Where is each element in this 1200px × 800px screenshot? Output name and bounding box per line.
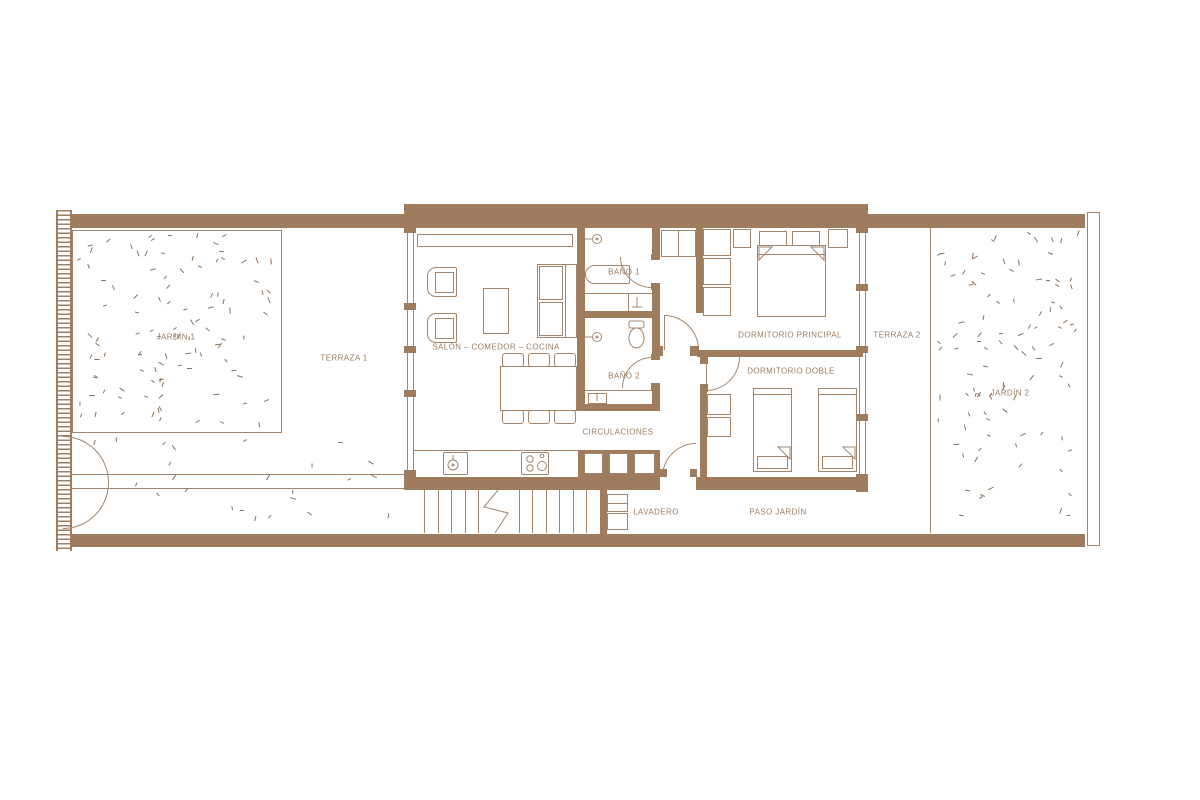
grass-icon bbox=[293, 490, 294, 494]
grass-icon bbox=[221, 338, 226, 341]
grass-icon bbox=[939, 346, 943, 351]
grass-icon bbox=[190, 320, 194, 326]
kitchen-counter-edge bbox=[414, 450, 578, 451]
grass-icon bbox=[1059, 469, 1063, 472]
grass-icon bbox=[1051, 302, 1055, 304]
kitchen-cabinet-unit bbox=[584, 453, 603, 474]
grass-icon bbox=[198, 265, 202, 267]
west-glass-joint bbox=[404, 228, 416, 233]
grass-icon bbox=[264, 399, 269, 402]
bath2-counter-line bbox=[585, 390, 652, 391]
grass-icon bbox=[162, 442, 166, 445]
grass-icon bbox=[217, 293, 219, 297]
grass-icon bbox=[996, 301, 1000, 304]
room-label-circulaciones: CIRCULACIONES bbox=[583, 428, 654, 437]
grass-icon bbox=[950, 274, 955, 277]
grass-icon bbox=[967, 373, 973, 375]
grass-icon bbox=[200, 352, 202, 356]
grass-icon bbox=[1068, 383, 1071, 387]
grass-icon bbox=[159, 418, 162, 422]
door-jamb bbox=[651, 283, 660, 290]
doble-west-wall bbox=[700, 391, 707, 477]
grass-icon bbox=[150, 330, 154, 332]
sink-icon bbox=[443, 452, 468, 475]
wardrobe-unit bbox=[703, 258, 731, 285]
bed-foot-line bbox=[753, 394, 792, 395]
sideboard bbox=[417, 234, 573, 247]
grass-icon bbox=[136, 250, 139, 256]
grass-icon bbox=[231, 370, 236, 372]
bed-foot-line bbox=[818, 394, 857, 395]
grass-icon bbox=[254, 280, 259, 282]
garden-strip-grass bbox=[80, 438, 395, 528]
grass-icon bbox=[988, 294, 991, 298]
grass-icon bbox=[104, 353, 106, 357]
sofa-cushion bbox=[539, 302, 563, 336]
wardrobe-unit bbox=[707, 394, 731, 415]
room-label-lavadero: LAVADERO bbox=[633, 508, 679, 517]
grass-icon bbox=[1066, 515, 1071, 516]
grass-icon bbox=[158, 394, 163, 399]
grass-icon bbox=[1073, 328, 1076, 332]
grass-icon bbox=[1041, 431, 1044, 435]
room-label-jardin-1: JARDÍN 1 bbox=[157, 333, 196, 342]
grass-icon bbox=[172, 445, 176, 450]
washer-icon bbox=[607, 513, 628, 530]
grass-icon bbox=[196, 233, 198, 238]
grass-icon bbox=[103, 305, 107, 307]
grass-icon bbox=[1048, 252, 1053, 255]
grass-icon bbox=[240, 509, 244, 510]
grass-icon bbox=[983, 366, 988, 368]
grass-icon bbox=[937, 341, 941, 344]
grass-icon bbox=[151, 238, 155, 241]
bed-sheet-line bbox=[757, 254, 826, 255]
grass-icon bbox=[987, 434, 991, 436]
house-bottom-wall-east bbox=[696, 477, 868, 490]
grass-icon bbox=[87, 333, 92, 338]
grass-icon bbox=[89, 354, 91, 358]
toilet-icon bbox=[629, 321, 644, 348]
stair-tread-line bbox=[546, 490, 547, 533]
dining-chair bbox=[528, 410, 550, 424]
grass-icon bbox=[165, 353, 167, 359]
grass-icon bbox=[347, 478, 351, 481]
grass-icon bbox=[1051, 237, 1053, 242]
grass-icon bbox=[1070, 284, 1072, 289]
grass-icon bbox=[148, 235, 152, 238]
grass-icon bbox=[1077, 230, 1080, 236]
door-jamb bbox=[651, 383, 660, 390]
grass-icon bbox=[308, 511, 313, 515]
door-swing-icon bbox=[664, 315, 699, 350]
armchair-seat bbox=[435, 272, 454, 293]
grass-icon bbox=[1019, 464, 1023, 468]
grass-icon bbox=[225, 358, 228, 362]
stair-tread-line bbox=[424, 490, 425, 533]
grass-icon bbox=[1055, 284, 1059, 287]
grass-icon bbox=[120, 387, 125, 391]
room-label-terraza-1: TERRAZA 1 bbox=[320, 354, 367, 363]
grass-icon bbox=[986, 418, 990, 421]
dining-chair bbox=[528, 353, 550, 367]
bed-pillow bbox=[792, 231, 820, 246]
grass-icon bbox=[118, 396, 122, 398]
grass-icon bbox=[979, 447, 982, 451]
grass-icon bbox=[1009, 269, 1014, 272]
grass-icon bbox=[953, 444, 959, 445]
east-glass-joint bbox=[856, 284, 868, 291]
grass-icon bbox=[167, 301, 170, 304]
room-label-jardin-2: JARDÍN 2 bbox=[991, 389, 1030, 398]
stair-tread-line bbox=[478, 490, 479, 533]
grass-icon bbox=[1036, 279, 1042, 281]
grass-icon bbox=[133, 294, 138, 299]
grass-icon bbox=[1060, 361, 1063, 367]
grass-icon bbox=[977, 341, 981, 342]
grass-icon bbox=[221, 257, 225, 260]
grass-icon bbox=[229, 307, 231, 313]
grass-icon bbox=[135, 312, 139, 314]
grass-icon bbox=[161, 252, 165, 254]
shower-icon bbox=[585, 333, 602, 342]
grass-icon bbox=[954, 348, 959, 350]
stair-tread-line bbox=[451, 490, 452, 533]
grass-icon bbox=[185, 353, 191, 355]
grass-icon bbox=[213, 394, 219, 395]
grass-icon bbox=[222, 299, 224, 304]
grass-icon bbox=[264, 312, 268, 316]
grass-icon bbox=[172, 475, 176, 481]
grass-icon bbox=[94, 359, 99, 360]
grass-icon bbox=[1015, 443, 1017, 447]
grass-icon bbox=[80, 413, 83, 417]
dining-table-icon bbox=[500, 366, 577, 411]
nightstand bbox=[828, 229, 848, 248]
grass-icon bbox=[215, 258, 218, 262]
grass-icon bbox=[151, 411, 154, 417]
grass-icon bbox=[1059, 306, 1062, 310]
grass-icon bbox=[1014, 345, 1019, 350]
grass-icon bbox=[999, 333, 1003, 334]
grass-icon bbox=[972, 280, 977, 285]
grass-icon bbox=[981, 272, 985, 275]
grass-icon bbox=[167, 284, 171, 288]
grass-icon bbox=[168, 235, 172, 236]
grass-icon bbox=[962, 270, 965, 275]
bath-block-west-wall bbox=[577, 228, 585, 411]
grass-icon bbox=[222, 234, 227, 237]
grass-icon bbox=[116, 438, 117, 443]
armchair-seat bbox=[435, 318, 454, 339]
grass-icon bbox=[1002, 258, 1005, 264]
grass-icon bbox=[269, 515, 272, 519]
top-exterior-wall bbox=[70, 214, 1085, 228]
grass-icon bbox=[1036, 357, 1042, 358]
grass-icon bbox=[1059, 375, 1063, 378]
stair-tread-line bbox=[573, 490, 574, 533]
grass-icon bbox=[151, 380, 155, 383]
grass-icon bbox=[962, 453, 964, 457]
wardrobe-unit bbox=[703, 287, 731, 316]
grass-icon bbox=[983, 315, 985, 320]
grass-icon bbox=[163, 276, 167, 280]
grass-icon bbox=[130, 244, 133, 249]
top-exterior-wall-thick bbox=[404, 204, 868, 216]
grass-icon bbox=[93, 440, 95, 445]
grass-icon bbox=[994, 235, 997, 240]
west-glass-joint bbox=[404, 346, 416, 353]
grass-icon bbox=[103, 389, 106, 393]
grass-icon bbox=[184, 488, 188, 492]
grass-icon bbox=[1060, 507, 1063, 513]
grass-icon bbox=[266, 475, 270, 481]
floor-plan: JARDÍN 1 TERRAZA 1 SALÓN – COMEDOR – COC… bbox=[0, 0, 1200, 800]
stair-tread-line bbox=[438, 490, 439, 533]
grass-icon bbox=[1070, 277, 1072, 281]
door-jamb bbox=[660, 469, 667, 477]
grass-icon bbox=[267, 289, 271, 293]
grass-icon bbox=[988, 486, 994, 489]
grass-icon bbox=[958, 321, 964, 323]
door-jamb bbox=[651, 254, 660, 260]
jardin-2-boundary bbox=[930, 228, 931, 533]
wardrobe-unit bbox=[703, 229, 731, 256]
dining-chair bbox=[502, 353, 524, 367]
dining-chair bbox=[554, 410, 576, 424]
grass-icon bbox=[241, 260, 247, 264]
grass-icon bbox=[258, 422, 260, 427]
door-swing-icon bbox=[706, 357, 740, 391]
grass-icon bbox=[206, 327, 211, 331]
west-glass-joint bbox=[404, 303, 416, 310]
grass-icon bbox=[952, 333, 957, 338]
grass-icon bbox=[243, 403, 247, 405]
grass-icon bbox=[195, 348, 196, 353]
grass-icon bbox=[1032, 346, 1036, 351]
grass-icon bbox=[121, 413, 125, 416]
grass-icon bbox=[998, 341, 1002, 346]
grass-icon bbox=[937, 253, 941, 256]
coffee-table bbox=[483, 288, 509, 334]
grass-icon bbox=[101, 279, 106, 280]
grass-icon bbox=[1070, 324, 1074, 326]
grass-icon bbox=[243, 336, 244, 340]
dining-chair bbox=[554, 353, 576, 367]
grass-icon bbox=[267, 297, 270, 303]
bedroom-divider-wall bbox=[697, 350, 863, 357]
grass-icon bbox=[1058, 326, 1062, 329]
jardin-2-grass bbox=[934, 232, 1082, 528]
door-leaf bbox=[664, 315, 665, 350]
nightstand bbox=[733, 229, 751, 248]
grass-icon bbox=[1063, 319, 1068, 323]
bottom-exterior-wall bbox=[70, 534, 1085, 547]
grass-icon bbox=[140, 370, 144, 372]
grass-icon bbox=[150, 268, 156, 270]
bath1-counter-line bbox=[585, 293, 652, 294]
grass-icon bbox=[183, 309, 187, 311]
right-boundary-strip bbox=[1087, 212, 1100, 546]
grass-icon bbox=[270, 258, 272, 264]
grass-icon bbox=[144, 250, 148, 256]
grass-icon bbox=[1060, 238, 1062, 243]
washer-detail-line bbox=[608, 503, 627, 504]
room-label-dormitorio-doble: DORMITORIO DOBLE bbox=[747, 367, 835, 376]
east-glass-joint bbox=[856, 228, 868, 233]
sofa-back-line bbox=[565, 264, 566, 338]
grass-icon bbox=[1055, 278, 1060, 282]
stair-tread-line bbox=[465, 490, 466, 533]
grass-icon bbox=[215, 343, 221, 345]
grass-icon bbox=[168, 462, 171, 466]
faucet-icon bbox=[632, 297, 642, 307]
grass-icon bbox=[984, 412, 987, 416]
jardin-1-grass bbox=[76, 234, 278, 429]
west-glass-joint bbox=[404, 470, 416, 477]
grass-icon bbox=[162, 382, 165, 387]
room-label-terraza-2: TERRAZA 2 bbox=[873, 331, 920, 340]
grass-icon bbox=[1068, 450, 1072, 452]
grass-icon bbox=[96, 337, 99, 342]
kitchen-cabinet-unit bbox=[634, 453, 655, 474]
grass-icon bbox=[1049, 343, 1054, 347]
grass-icon bbox=[191, 256, 193, 261]
dining-chair bbox=[502, 410, 524, 424]
stair-tread-line bbox=[586, 490, 587, 533]
stair-tread-line bbox=[559, 490, 560, 533]
kitchen-cabinet-unit bbox=[609, 453, 628, 474]
room-label-bano-1: BAÑO 1 bbox=[608, 268, 640, 277]
grass-icon bbox=[80, 402, 81, 406]
grass-icon bbox=[371, 474, 377, 477]
bed-pillow bbox=[759, 231, 787, 246]
west-glass-joint bbox=[404, 390, 416, 397]
bedroom-divider-stub bbox=[652, 350, 660, 357]
grass-icon bbox=[95, 412, 97, 417]
grass-icon bbox=[219, 251, 225, 253]
grass-icon bbox=[87, 264, 90, 269]
grass-icon bbox=[1018, 333, 1024, 336]
grass-icon bbox=[213, 242, 219, 245]
grass-icon bbox=[1028, 324, 1031, 329]
grass-icon bbox=[1069, 493, 1073, 497]
hall-closet-divider bbox=[678, 230, 679, 257]
grass-icon bbox=[112, 285, 115, 290]
wardrobe-unit bbox=[707, 417, 731, 437]
stairs-icon bbox=[424, 490, 600, 533]
grass-icon bbox=[1039, 311, 1042, 316]
grass-icon bbox=[1013, 298, 1015, 302]
room-label-salon-comedor-cocina: SALÓN – COMEDOR – COCINA bbox=[432, 343, 559, 352]
grass-icon bbox=[984, 347, 988, 350]
grass-icon bbox=[311, 463, 312, 467]
double-bed-icon bbox=[757, 245, 826, 317]
grass-icon bbox=[1050, 308, 1051, 313]
grass-icon bbox=[158, 361, 163, 364]
grass-icon bbox=[959, 515, 964, 517]
room-label-dormitorio-principal: DORMITORIO PRINCIPAL bbox=[738, 331, 842, 340]
stair-tread-line bbox=[519, 490, 520, 533]
grass-icon bbox=[977, 333, 981, 338]
grass-icon bbox=[290, 498, 296, 501]
grass-icon bbox=[940, 395, 941, 401]
grass-icon bbox=[95, 342, 100, 346]
grass-icon bbox=[1018, 260, 1020, 266]
grass-icon bbox=[1034, 326, 1038, 329]
grass-icon bbox=[136, 332, 140, 334]
bed-pillow bbox=[757, 456, 788, 469]
grass-icon bbox=[158, 297, 161, 302]
grass-icon bbox=[1029, 375, 1033, 380]
house-bottom-wall-west bbox=[404, 477, 660, 490]
grass-icon bbox=[90, 248, 93, 254]
grass-icon bbox=[937, 419, 938, 423]
grass-icon bbox=[180, 269, 184, 274]
stove-icon bbox=[521, 452, 549, 475]
grass-icon bbox=[237, 375, 243, 378]
stair-tread-line bbox=[532, 490, 533, 533]
grass-icon bbox=[178, 364, 182, 366]
grass-icon bbox=[210, 293, 213, 298]
grass-icon bbox=[944, 261, 946, 265]
grass-icon bbox=[243, 439, 247, 442]
east-glass-joint bbox=[856, 414, 868, 421]
grass-icon bbox=[220, 421, 224, 424]
grass-icon bbox=[1046, 280, 1050, 281]
grass-icon bbox=[1061, 436, 1063, 440]
grass-icon bbox=[1028, 232, 1032, 235]
grass-icon bbox=[107, 239, 111, 243]
bed-pillow bbox=[822, 456, 853, 469]
grass-icon bbox=[973, 387, 975, 391]
grass-icon bbox=[965, 393, 969, 396]
grass-icon bbox=[135, 482, 138, 486]
door-jamb bbox=[700, 384, 708, 392]
grass-icon bbox=[967, 412, 969, 416]
bath-block-east-wall bbox=[652, 228, 660, 256]
corridor-east-wall bbox=[696, 228, 703, 313]
shower-icon bbox=[585, 235, 602, 244]
bath-block-south-wall bbox=[577, 404, 660, 411]
grass-icon bbox=[77, 258, 81, 261]
lavadero-west-wall bbox=[600, 490, 607, 534]
grass-icon bbox=[368, 461, 373, 465]
grass-icon bbox=[1020, 433, 1026, 437]
room-label-bano-2: BAÑO 2 bbox=[608, 372, 640, 381]
grass-icon bbox=[965, 490, 970, 492]
grass-icon bbox=[388, 514, 390, 519]
grass-icon bbox=[195, 420, 200, 424]
grass-icon bbox=[187, 368, 192, 369]
room-label-paso-jardin: PASO JARDÍN bbox=[749, 508, 806, 517]
grass-icon bbox=[154, 367, 156, 372]
grass-icon bbox=[338, 442, 343, 443]
grass-icon bbox=[1002, 409, 1007, 413]
grass-icon bbox=[255, 516, 257, 521]
grass-icon bbox=[89, 394, 95, 395]
grass-icon bbox=[208, 306, 214, 308]
grass-icon bbox=[1034, 237, 1038, 243]
grass-icon bbox=[144, 395, 148, 397]
door-jamb bbox=[700, 357, 708, 364]
grass-icon bbox=[1021, 351, 1026, 356]
door-jamb bbox=[690, 469, 697, 477]
grass-icon bbox=[262, 290, 264, 295]
grass-icon bbox=[173, 327, 177, 330]
bath1-counter-divider bbox=[628, 293, 629, 311]
sink-icon bbox=[588, 393, 607, 404]
